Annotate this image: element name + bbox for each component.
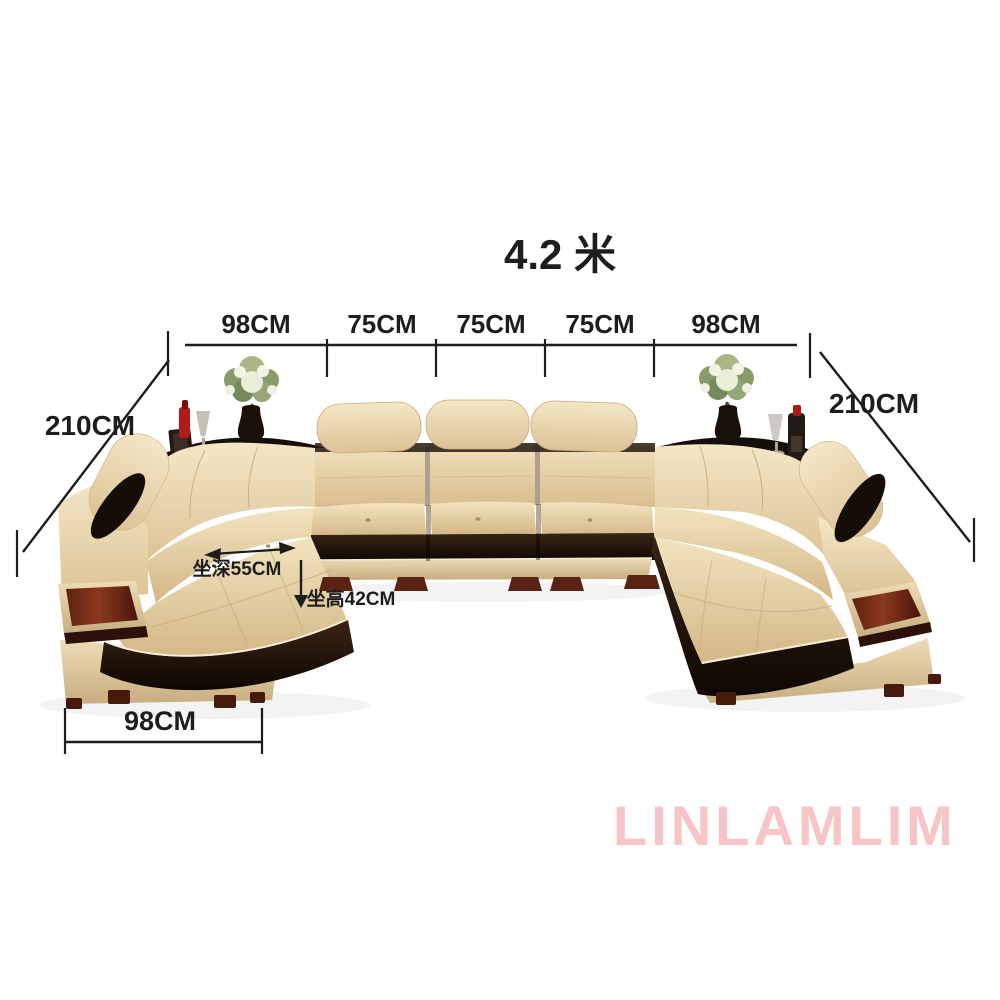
overall-width-label: 4.2 米	[455, 233, 665, 277]
flower-vase-left	[224, 356, 279, 442]
flower-vase-right	[699, 354, 754, 442]
product-image: 4.2 米 98CM 75CM 75CM 75CM 98CM 210CM 210…	[0, 0, 1000, 1000]
wine-bottle	[788, 405, 805, 459]
module-gap	[536, 534, 540, 560]
left-depth-label: 210CM	[20, 411, 160, 440]
right-depth-label: 210CM	[804, 389, 944, 418]
middle-backrest	[315, 445, 655, 507]
segment-width-label-1: 98CM	[196, 311, 316, 338]
chaise-width-label: 98CM	[100, 707, 220, 735]
segment-width-label-4: 75CM	[540, 311, 660, 338]
module-gap	[426, 535, 430, 561]
brand-watermark: LINLAMLIM	[570, 793, 1000, 858]
headrest-pillows	[316, 400, 638, 454]
seat-height-label: 坐高42CM	[271, 590, 431, 610]
segment-width-label-5: 98CM	[666, 311, 786, 338]
middle-seats	[311, 502, 654, 538]
middle-base	[315, 558, 652, 580]
segment-width-label-3: 75CM	[431, 311, 551, 338]
red-bottle	[179, 400, 190, 438]
segment-width-label-2: 75CM	[322, 311, 442, 338]
seat-depth-label: 坐深55CM	[157, 560, 317, 580]
left-wood-shelf	[58, 581, 148, 644]
